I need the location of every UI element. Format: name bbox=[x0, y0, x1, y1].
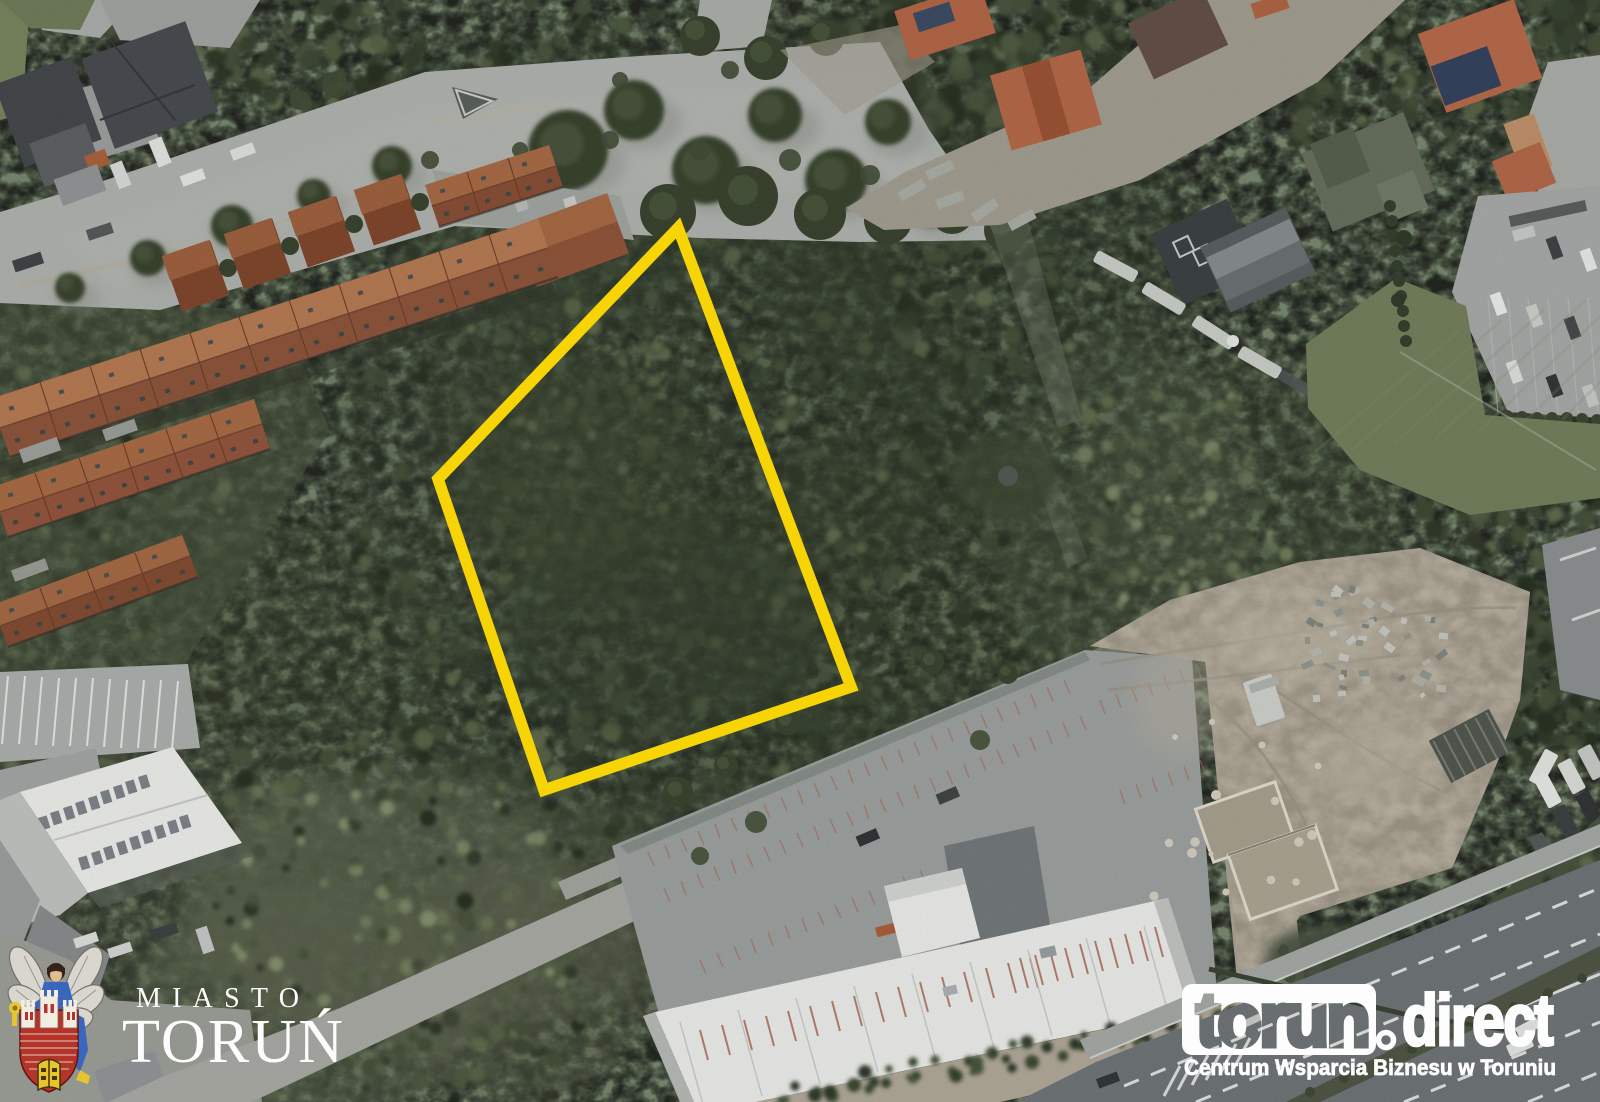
svg-text:direct: direct bbox=[1402, 981, 1554, 1061]
svg-text:Centrum Wsparcia Biznesu w Tor: Centrum Wsparcia Biznesu w Toruniu bbox=[1184, 1055, 1556, 1080]
svg-text:TORUŃ: TORUŃ bbox=[122, 1008, 345, 1076]
